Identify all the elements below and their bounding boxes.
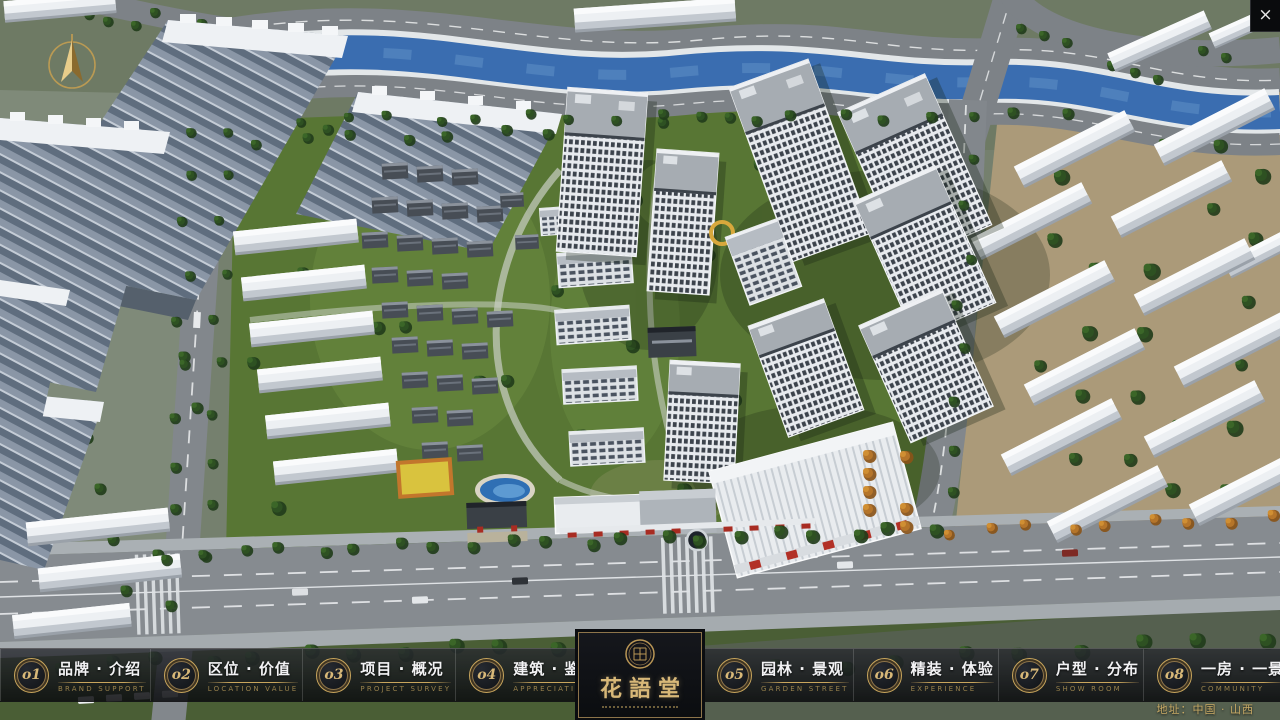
gold-underline [208, 682, 299, 683]
nav-label-zh: 户型 · 分布 [1056, 658, 1139, 679]
nav-label-en: GARDEN STREET [761, 685, 849, 693]
nav-label-zh: 一房 · 一景 [1201, 658, 1280, 679]
nav-item-views[interactable]: o8 一房 · 一景 COMMUNITY [1144, 649, 1280, 701]
nav-number-badge: o6 [867, 658, 902, 693]
presentation-screen: × o1 品牌 · 介绍 BRAND SUPPORT o2 区位 · 价值 LO… [0, 0, 1280, 720]
nav-item-floorplans[interactable]: o7 户型 · 分布 SHOW ROOM [999, 649, 1144, 701]
nav-item-location[interactable]: o2 区位 · 价值 LOCATION VALUE [151, 649, 304, 701]
nav-item-garden[interactable]: o5 园林 · 景观 GARDEN STREET [704, 649, 854, 701]
nav-number-badge: o2 [164, 658, 199, 693]
gold-underline [761, 682, 849, 683]
close-button[interactable]: × [1250, 0, 1280, 32]
nav-label-en: LOCATION VALUE [208, 685, 299, 693]
gold-underline [58, 682, 146, 683]
nav-label-zh: 项目 · 概况 [360, 658, 451, 679]
nav-label-en: EXPERIENCE [911, 685, 994, 693]
nav-group-right: o5 园林 · 景观 GARDEN STREET o6 精装 · 体验 EXPE… [703, 649, 1280, 701]
gold-underline [1201, 682, 1280, 683]
gold-underline [360, 682, 451, 683]
nav-label-en: SHOW ROOM [1056, 685, 1139, 693]
nav-label-zh: 园林 · 景观 [761, 658, 849, 679]
seal-emblem-icon [624, 638, 656, 670]
logo-caption [602, 706, 678, 708]
gold-underline [1056, 682, 1139, 683]
masterplan-viewport[interactable] [0, 0, 1280, 720]
nav-label-en: BRAND SUPPORT [58, 685, 146, 693]
nav-item-project[interactable]: o3 项目 · 概况 PROJECT SURVEY [303, 649, 456, 701]
nav-item-brand[interactable]: o1 品牌 · 介绍 BRAND SUPPORT [1, 649, 151, 701]
nav-group-left: o1 品牌 · 介绍 BRAND SUPPORT o2 区位 · 价值 LOCA… [0, 649, 579, 701]
compass-north-icon[interactable] [42, 28, 102, 96]
nav-number-badge: o8 [1157, 658, 1192, 693]
nav-number-badge: o3 [316, 658, 351, 693]
project-logo[interactable]: 花語堂 [578, 632, 702, 718]
project-title: 花語堂 [593, 671, 687, 703]
nav-number-badge: o4 [469, 658, 504, 693]
nav-label-zh: 品牌 · 介绍 [58, 658, 146, 679]
nav-label-zh: 精装 · 体验 [911, 658, 994, 679]
nav-label-zh: 区位 · 价值 [208, 658, 299, 679]
nav-item-interior[interactable]: o6 精装 · 体验 EXPERIENCE [854, 649, 999, 701]
nav-number-badge: o7 [1012, 658, 1047, 693]
close-icon: × [1258, 5, 1272, 25]
nav-label-en: COMMUNITY [1201, 685, 1280, 693]
project-address: 地址：中国 · 山西 [1157, 701, 1255, 717]
gold-underline [911, 682, 994, 683]
nav-number-badge: o5 [717, 658, 752, 693]
nav-number-badge: o1 [14, 658, 49, 693]
nav-label-en: PROJECT SURVEY [360, 685, 451, 693]
